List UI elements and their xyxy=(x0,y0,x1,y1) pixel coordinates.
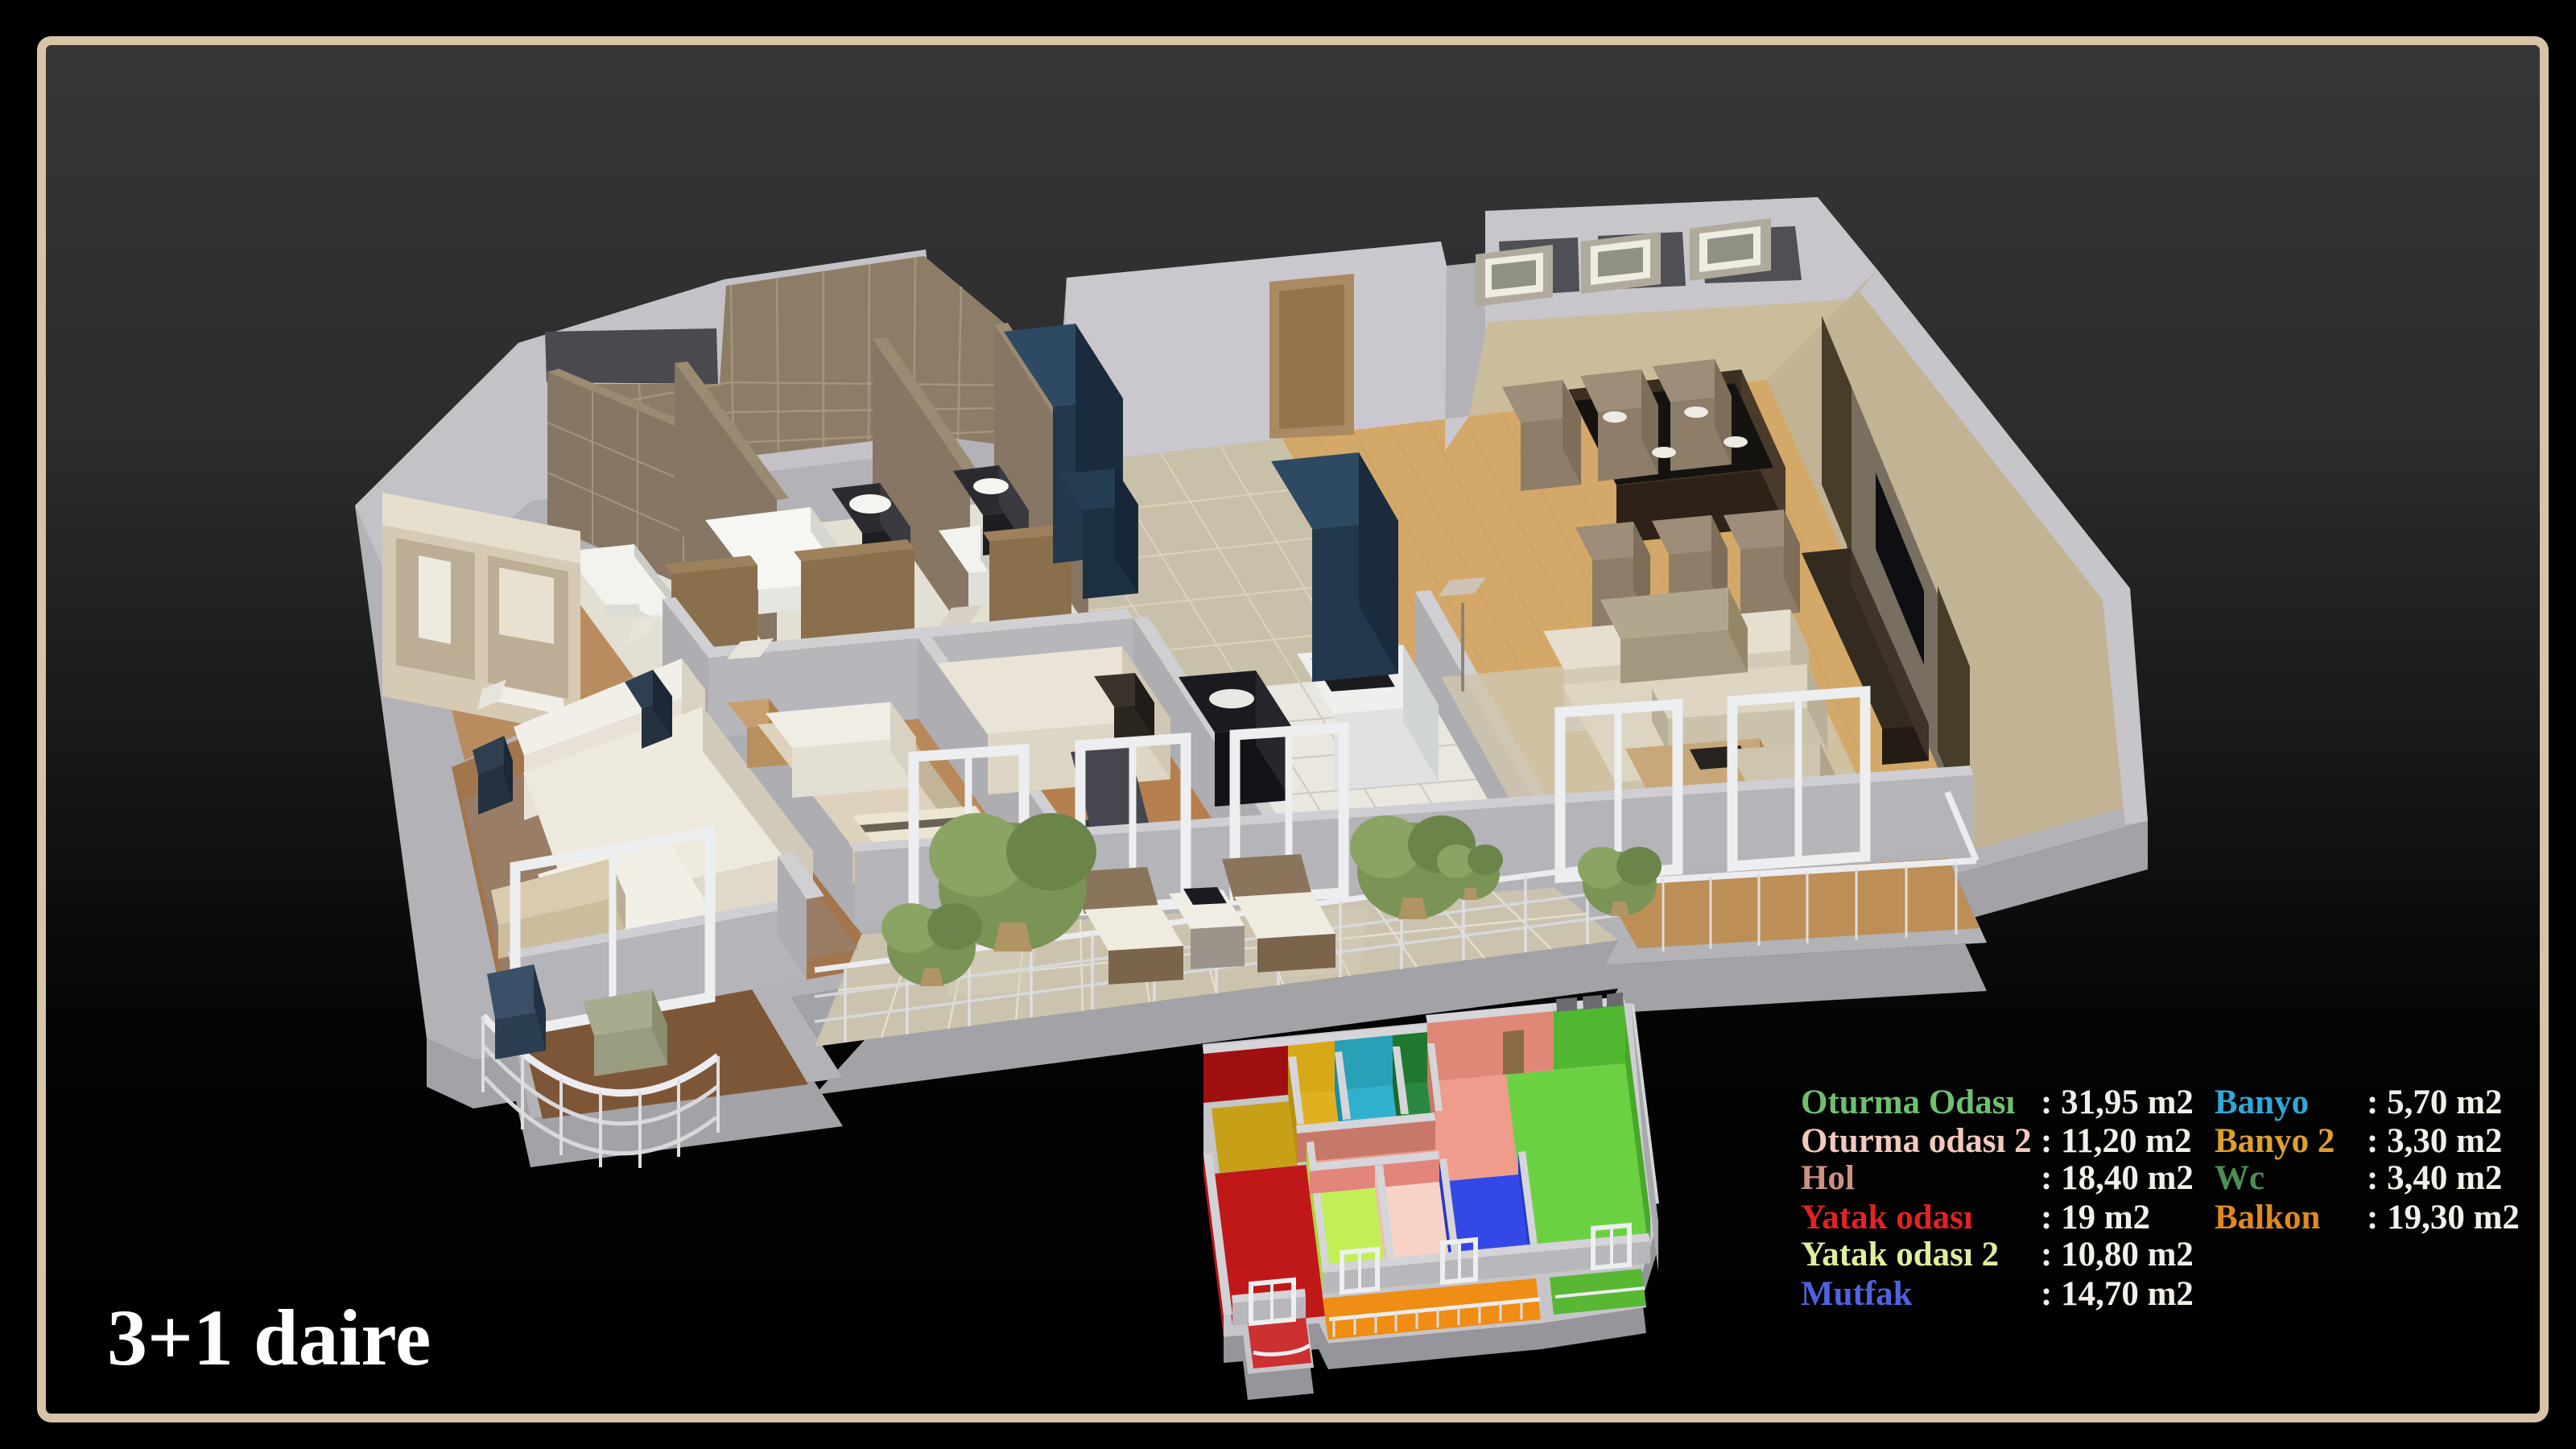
svg-text:: 11,20 m2: : 11,20 m2 xyxy=(2041,1122,2192,1160)
svg-text:Oturma Odası: Oturma Odası xyxy=(1801,1084,2015,1121)
svg-text:: 19 m2: : 19 m2 xyxy=(2041,1199,2150,1236)
svg-text:: 19,30 m2: : 19,30 m2 xyxy=(2367,1199,2520,1236)
svg-text:: 3,40 m2: : 3,40 m2 xyxy=(2367,1159,2502,1197)
svg-text:Wc: Wc xyxy=(2215,1159,2264,1197)
svg-text:Balkon: Balkon xyxy=(2215,1199,2321,1236)
svg-text:Hol: Hol xyxy=(1801,1159,1855,1197)
svg-text:: 18,40 m2: : 18,40 m2 xyxy=(2041,1159,2194,1197)
svg-text:Oturma odası 2: Oturma odası 2 xyxy=(1801,1122,2032,1160)
svg-text:Banyo 2: Banyo 2 xyxy=(2215,1122,2334,1160)
svg-text:Yatak odası: Yatak odası xyxy=(1801,1199,1973,1236)
svg-text:: 14,70 m2: : 14,70 m2 xyxy=(2041,1275,2194,1313)
svg-text:3+1 daire: 3+1 daire xyxy=(107,1293,431,1382)
svg-text:Banyo: Banyo xyxy=(2215,1084,2309,1121)
svg-text:: 10,80 m2: : 10,80 m2 xyxy=(2041,1236,2194,1274)
svg-text:: 3,30 m2: : 3,30 m2 xyxy=(2367,1122,2502,1160)
svg-text:Mutfak: Mutfak xyxy=(1801,1275,1913,1313)
svg-text:Yatak odası 2: Yatak odası 2 xyxy=(1801,1236,1999,1274)
svg-text:: 31,95 m2: : 31,95 m2 xyxy=(2041,1084,2194,1121)
svg-text:: 5,70 m2: : 5,70 m2 xyxy=(2367,1084,2502,1121)
